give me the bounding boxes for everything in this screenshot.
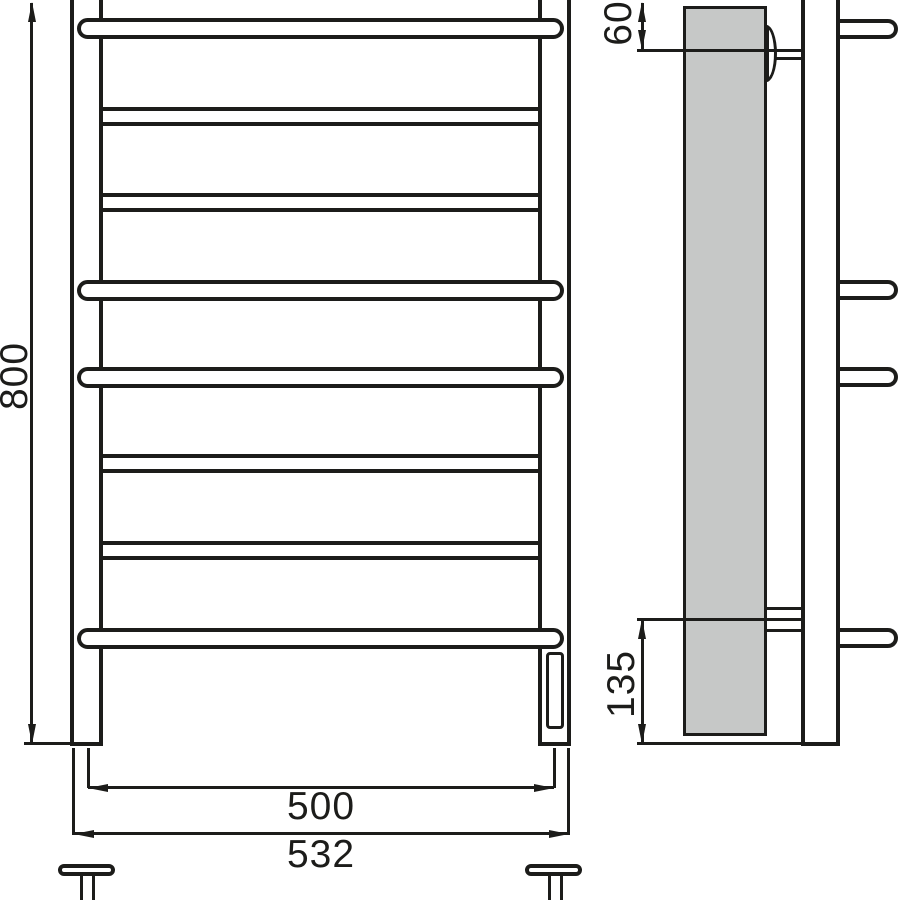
- mounting-feet: [0, 0, 900, 900]
- foot-left-stem: [80, 875, 95, 900]
- towel-rail-technical-drawing: 60 135: [0, 0, 900, 900]
- foot-right-stem: [548, 875, 563, 900]
